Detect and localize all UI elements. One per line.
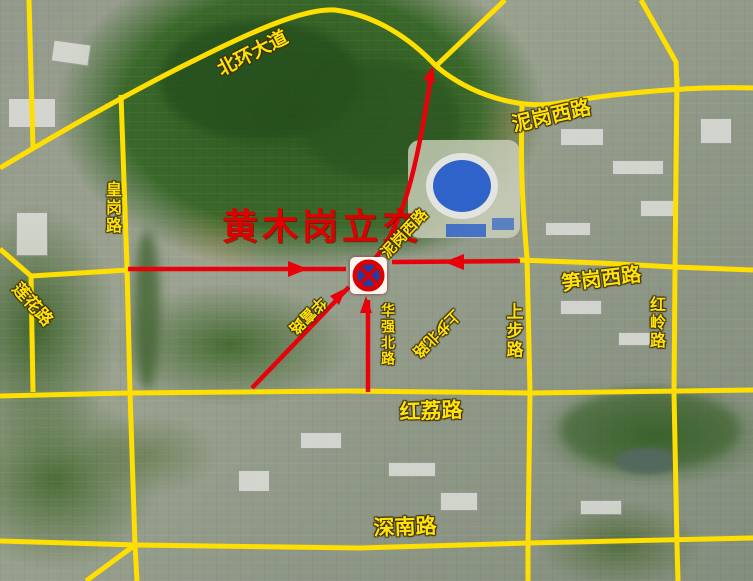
road-huanggang xyxy=(121,95,137,581)
road-lianhua xyxy=(0,249,31,276)
road-hongling xyxy=(674,78,678,581)
arrow-east-icon xyxy=(288,261,308,277)
road-label-huanggang: 皇岗路 xyxy=(100,181,124,235)
road-label-huaqiang-north: 华强北路 xyxy=(377,303,397,367)
map-container[interactable]: 黄木岗立交 北环大道 泥岗西路 皇岗路 莲花路 泥岗西路 笋岗西路 红岭路 上步… xyxy=(0,0,753,581)
road-label-shennan: 深南路 xyxy=(373,510,437,542)
arrow-west-icon xyxy=(444,254,464,270)
road-west-connector xyxy=(31,270,128,276)
arrow-northeast-icon xyxy=(423,66,435,83)
no-stopping-sign-icon xyxy=(350,257,387,294)
road-bottomleft-spur xyxy=(86,545,135,581)
road-label-hongling: 红岭路 xyxy=(644,296,668,350)
road-topleft-spur xyxy=(29,0,33,148)
road-nigang-west xyxy=(436,66,753,105)
road-label-shangbu: 上步路 xyxy=(501,303,526,360)
road-beihuan-avenue xyxy=(0,10,436,168)
road-topright-branch xyxy=(641,0,677,88)
road-north-branch xyxy=(436,0,505,66)
road-hongli xyxy=(0,390,753,396)
road-label-hongli: 红荔路 xyxy=(399,394,463,426)
